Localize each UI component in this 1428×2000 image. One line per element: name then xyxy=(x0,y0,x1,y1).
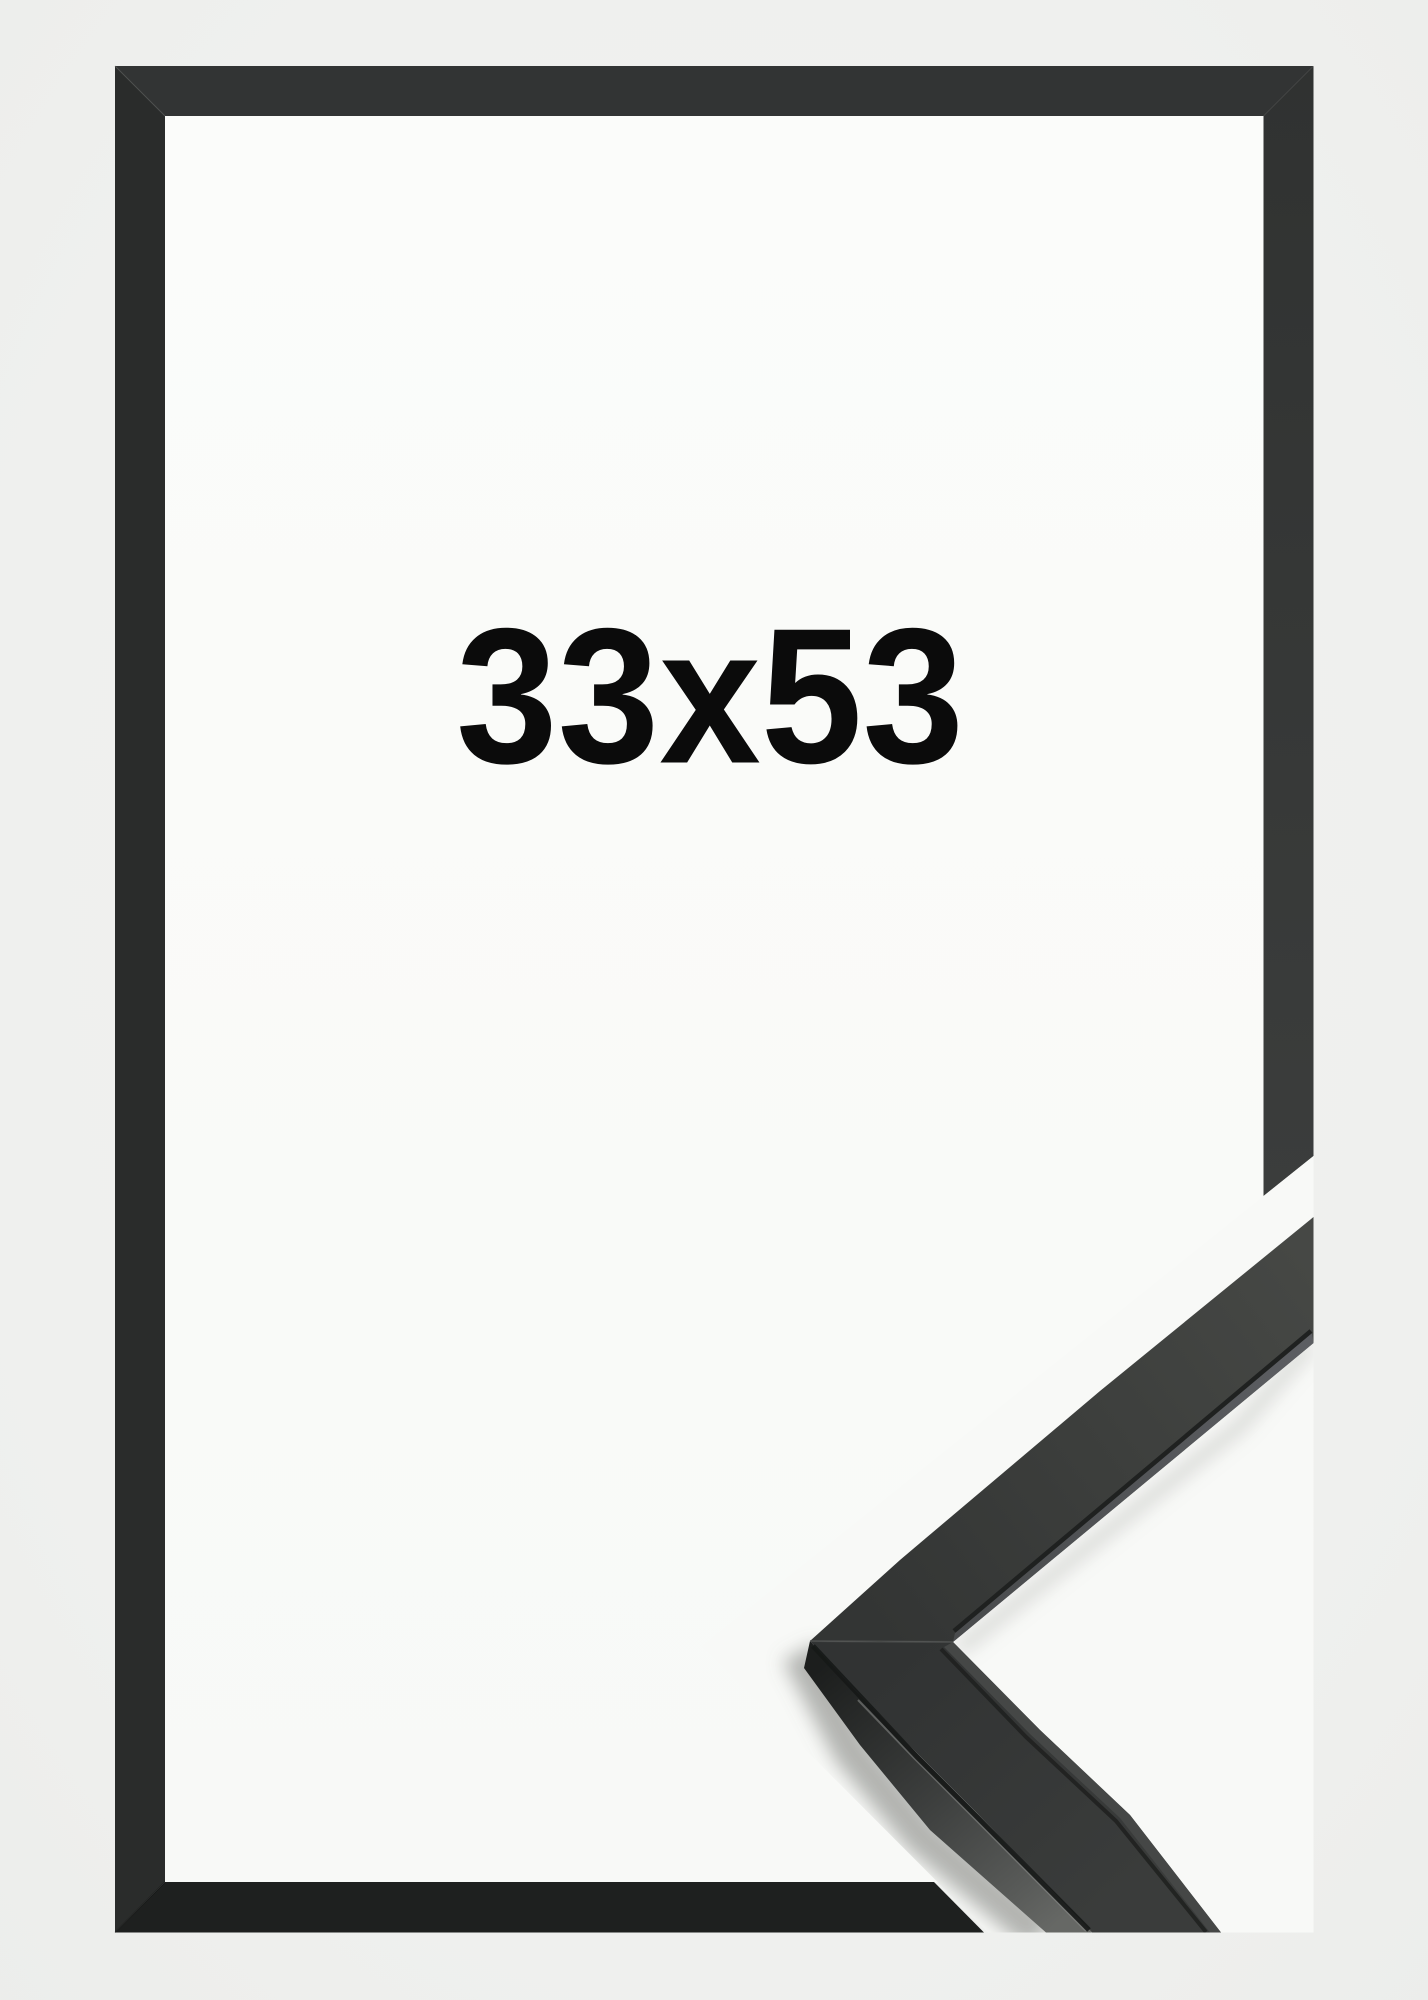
svg-text:33x53: 33x53 xyxy=(456,588,964,804)
